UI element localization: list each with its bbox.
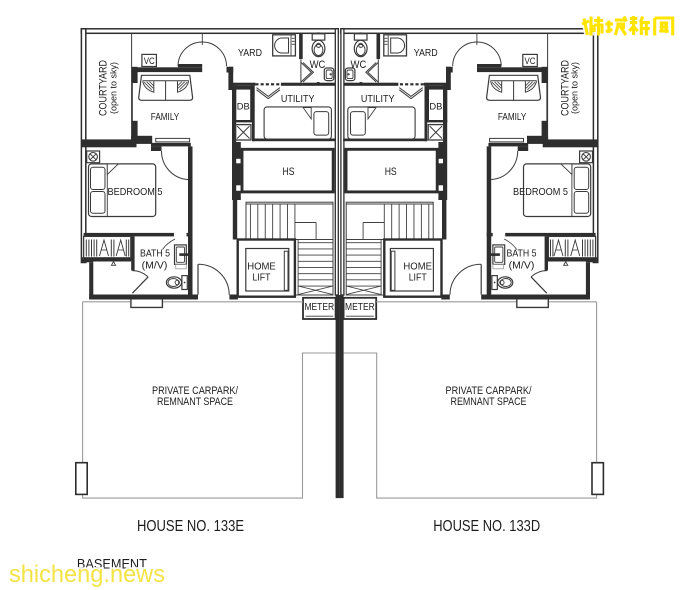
svg-text:VC: VC [144,56,155,67]
svg-text:METER: METER [304,302,334,313]
svg-text:BATH 5: BATH 5 [507,248,537,260]
svg-text:HOME: HOME [247,261,276,272]
svg-text:METER: METER [345,302,375,313]
svg-text:WC: WC [351,59,367,71]
svg-text:(open to sky): (open to sky) [109,62,119,114]
svg-text:shicheng.news: shicheng.news [9,561,165,588]
svg-text:BEDROOM 5: BEDROOM 5 [108,186,163,198]
svg-text:FAMILY: FAMILY [151,111,179,123]
svg-text:HS: HS [385,166,397,178]
svg-text:BATH 5: BATH 5 [140,248,170,260]
svg-text:DB: DB [429,102,442,113]
svg-text:BEDROOM 5: BEDROOM 5 [513,186,568,198]
svg-text:LIFT: LIFT [253,273,271,284]
svg-text:HOUSE NO. 133E: HOUSE NO. 133E [137,518,244,535]
svg-text:(M/V): (M/V) [142,260,168,272]
svg-text:YARD: YARD [238,47,262,59]
svg-text:UTILITY: UTILITY [361,93,395,105]
svg-text:HOME: HOME [403,261,432,272]
svg-text:HS: HS [283,166,295,178]
svg-text:LIFT: LIFT [409,273,427,284]
svg-text:WC: WC [310,59,326,71]
svg-text:UTILITY: UTILITY [281,93,315,105]
svg-text:DB: DB [237,102,250,113]
svg-text:YARD: YARD [414,47,438,59]
svg-text:(M/V): (M/V) [509,260,535,272]
svg-text:REMNANT SPACE: REMNANT SPACE [157,396,233,408]
svg-text:REMNANT SPACE: REMNANT SPACE [451,396,527,408]
svg-text:VC: VC [525,56,536,67]
svg-text:(open to sky): (open to sky) [569,62,579,114]
svg-text:FAMILY: FAMILY [498,111,526,123]
svg-text:HOUSE NO. 133D: HOUSE NO. 133D [433,518,540,535]
